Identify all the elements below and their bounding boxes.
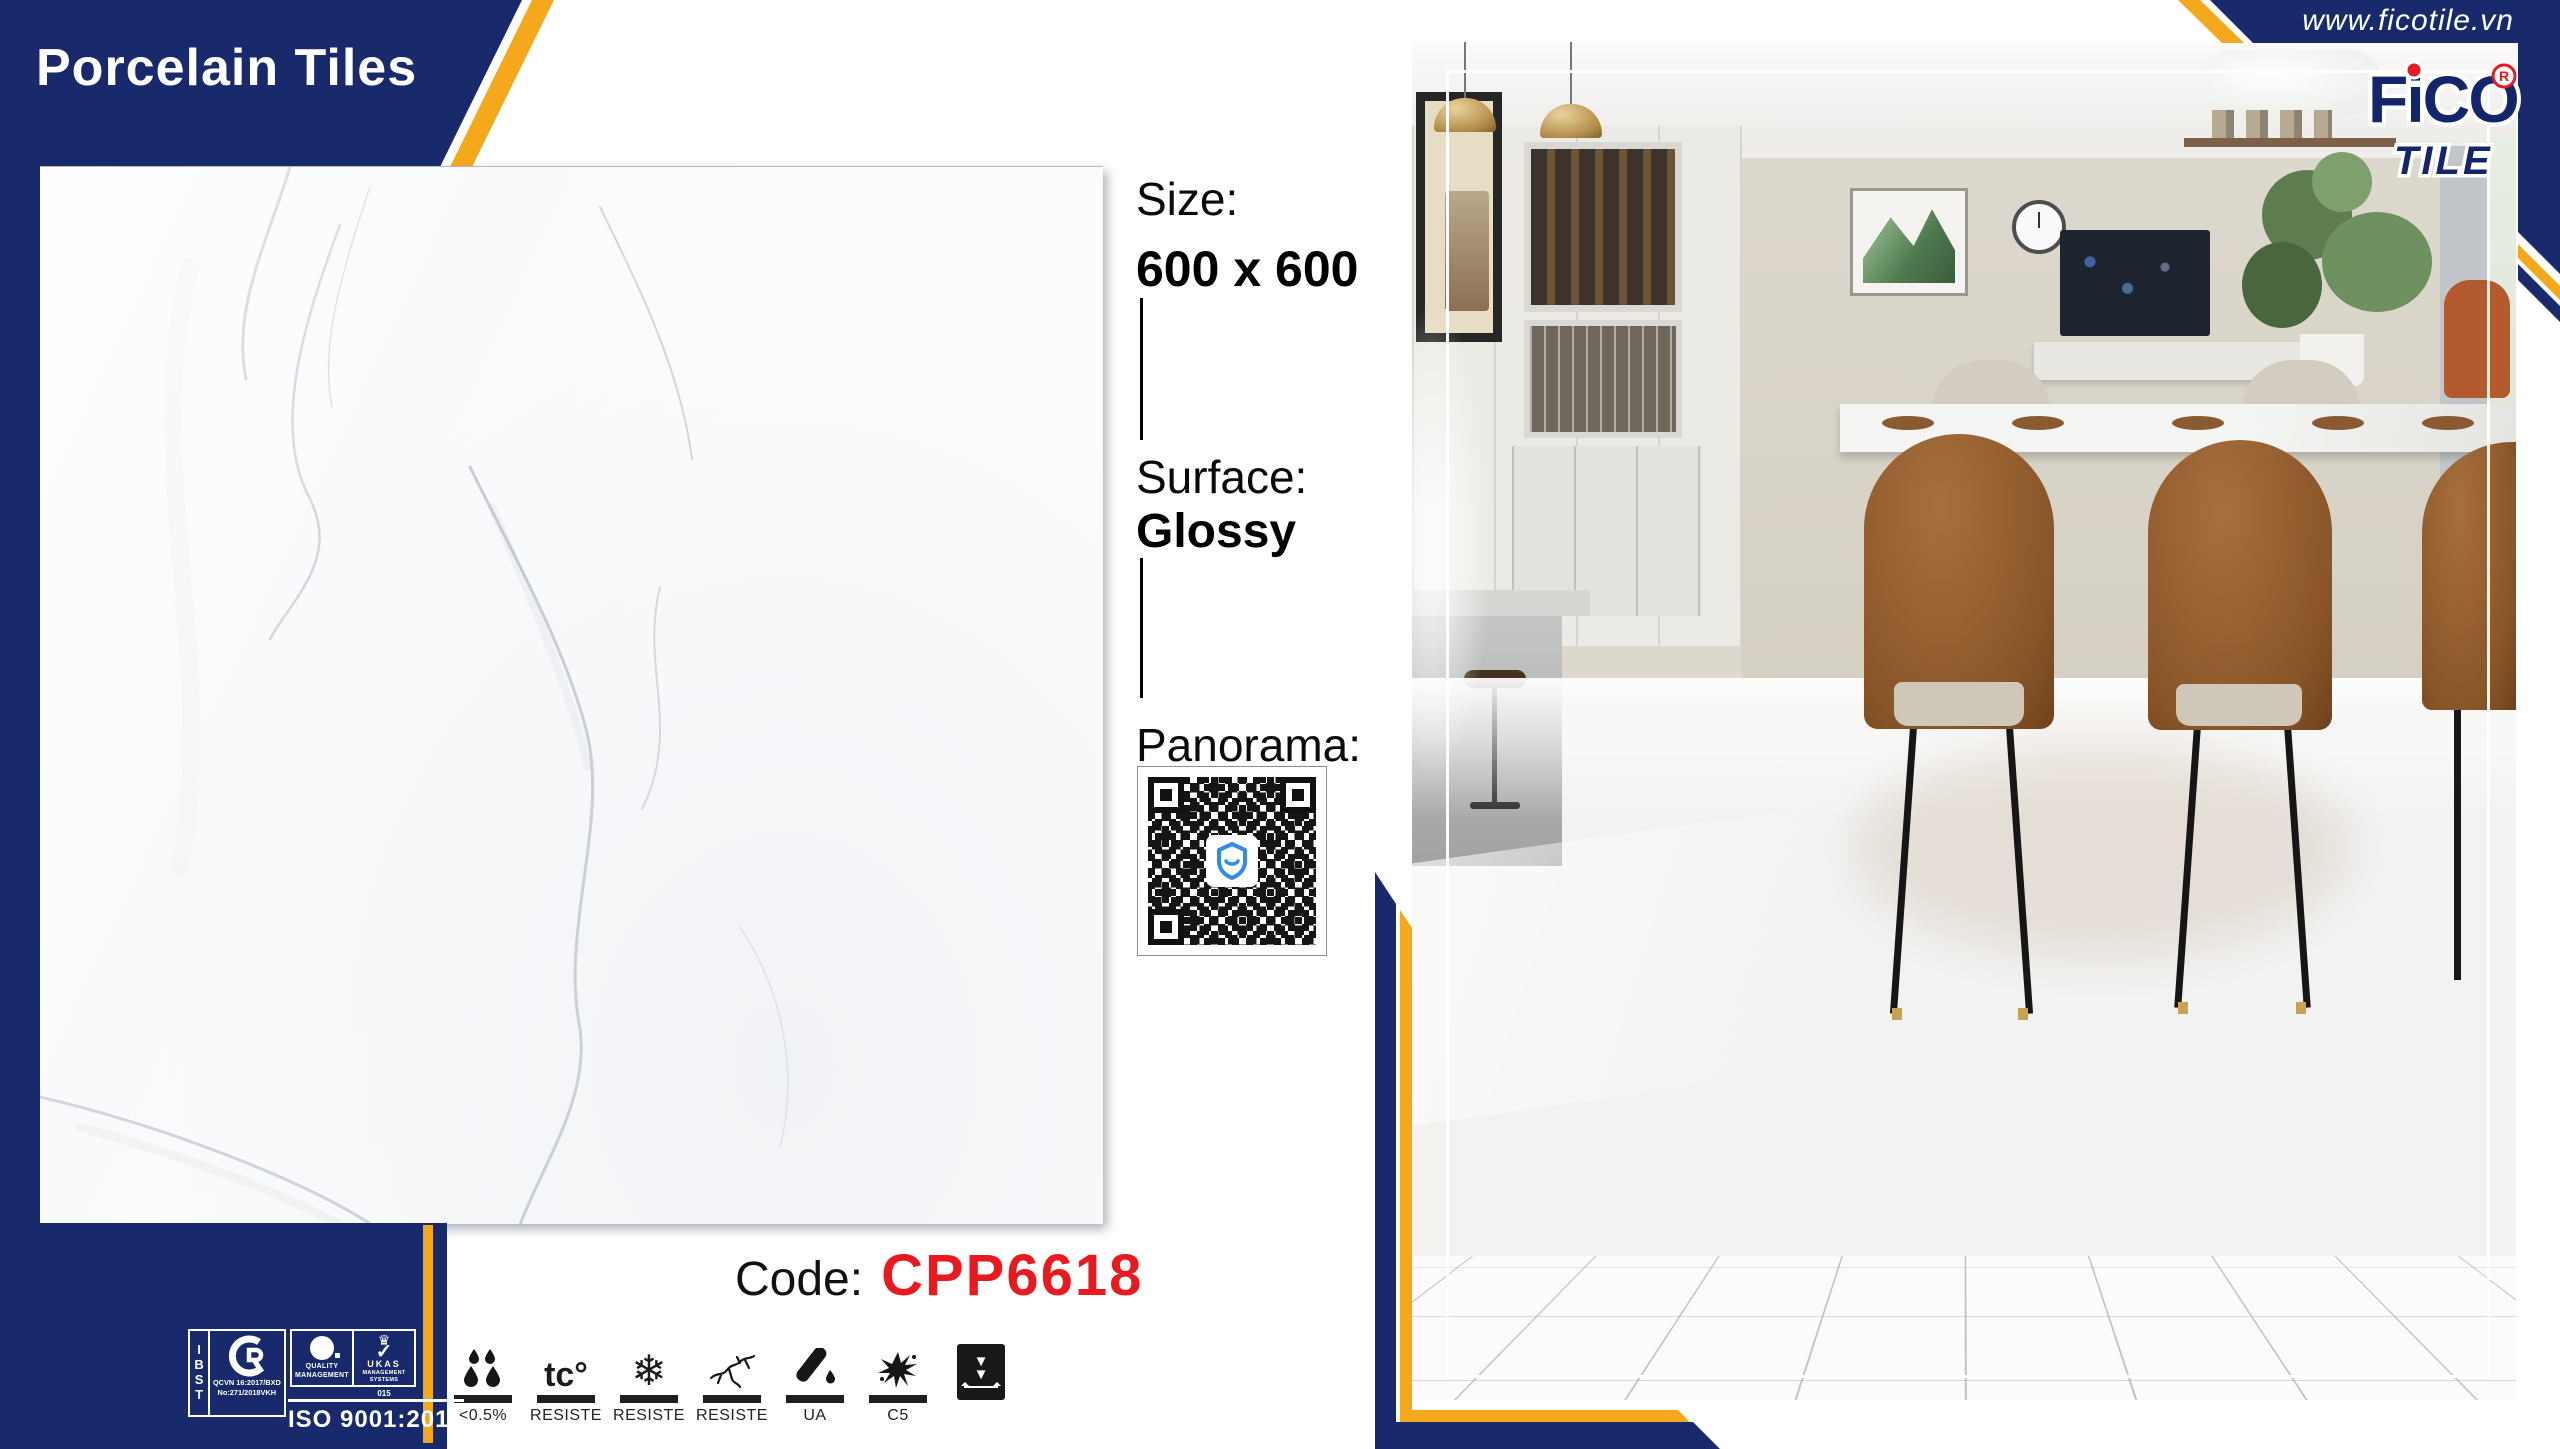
feature-temperature: tc° RESISTE bbox=[531, 1344, 601, 1425]
photo-bracket-left-navy bbox=[1375, 872, 1396, 1449]
size-label: Size: bbox=[1136, 172, 1238, 226]
ukas-sub-1: MANAGEMENT bbox=[362, 1370, 405, 1376]
iso-certification-text: ISO 9001:2015 bbox=[288, 1399, 464, 1434]
website-link[interactable]: www.ficotile.vn bbox=[2302, 4, 2514, 38]
photo-bracket-left-orange bbox=[1400, 910, 1412, 1422]
feature-bar bbox=[786, 1395, 844, 1403]
divider-line bbox=[1140, 298, 1143, 440]
cr-mark-icon bbox=[225, 1334, 269, 1378]
thickness-icon: ▼ ▼ bbox=[957, 1344, 1005, 1400]
panorama-label: Panorama: bbox=[1136, 718, 1361, 772]
feature-icons-row: <0.5% tc° RESISTE ❄ RESISTE bbox=[448, 1344, 1016, 1425]
qr-finder-icon bbox=[1148, 909, 1184, 945]
temperature-icon: tc° bbox=[544, 1344, 588, 1392]
catalog-page: Porcelain Tiles Size: 600 x 600 Surface:… bbox=[0, 0, 2560, 1449]
cr-reg-line2: No:271/2018VKH bbox=[218, 1388, 277, 1397]
feature-chemical: UA bbox=[780, 1344, 850, 1425]
logo-i-dot bbox=[2406, 62, 2422, 78]
code-label: Code: bbox=[735, 1252, 863, 1307]
quality-management-badge: QUALITY MANAGEMENT bbox=[290, 1329, 354, 1387]
qr-center-logo bbox=[1206, 835, 1258, 887]
feature-frost: ❄ RESISTE bbox=[614, 1344, 684, 1425]
code-value: CPP6618 bbox=[881, 1242, 1143, 1309]
ibst-label: IBST bbox=[190, 1331, 210, 1415]
ukas-number: 015 bbox=[352, 1389, 416, 1398]
qr-finder-icon bbox=[1148, 777, 1184, 813]
size-value: 600 x 600 bbox=[1136, 240, 1358, 298]
feature-stain: C5 bbox=[863, 1344, 933, 1425]
stain-burst-icon bbox=[875, 1344, 921, 1392]
qr-finder-icon bbox=[1280, 777, 1316, 813]
photo-bracket-bottom-orange bbox=[1400, 1410, 1690, 1422]
snowflake-icon: ❄ bbox=[631, 1344, 666, 1392]
feature-bar bbox=[869, 1395, 927, 1403]
photo-bracket-right-navy bbox=[2518, 0, 2560, 274]
feature-bar bbox=[537, 1395, 595, 1403]
crack-icon bbox=[707, 1344, 757, 1392]
cr-reg-line1: QCVN 16:2017/BXD bbox=[213, 1378, 281, 1387]
quality-label-2: MANAGEMENT bbox=[292, 1372, 352, 1381]
tile-sample-image bbox=[40, 166, 1103, 1224]
surface-label: Surface: bbox=[1136, 450, 1307, 504]
product-code-row: Code: CPP6618 bbox=[735, 1242, 1143, 1309]
panorama-qr-code[interactable] bbox=[1137, 766, 1327, 956]
water-drops-icon bbox=[460, 1344, 506, 1392]
ukas-sub-2: SYSTEMS bbox=[370, 1377, 398, 1383]
tile-gloss-sheen bbox=[40, 167, 1103, 1224]
feature-thickness: ▼ ▼ bbox=[946, 1344, 1016, 1425]
ukas-label: UKAS bbox=[354, 1360, 414, 1370]
surface-value: Glossy bbox=[1136, 504, 1296, 559]
feature-label: RESISTE bbox=[696, 1407, 768, 1425]
feature-label: C5 bbox=[887, 1407, 908, 1425]
page-title: Porcelain Tiles bbox=[36, 38, 417, 98]
room-scene-photo bbox=[1412, 42, 2516, 1400]
feature-label: <0.5% bbox=[459, 1407, 507, 1425]
brand-logo: FiCO R TILE bbox=[2366, 54, 2522, 192]
feature-label: RESISTE bbox=[530, 1407, 602, 1425]
photo-inner-frame bbox=[1446, 70, 2490, 1378]
quality-circle-icon bbox=[310, 1336, 334, 1360]
bottom-left-navy-panel: IBST QCVN 16:2017/BXD No:271/2018VKH QUA… bbox=[0, 1223, 447, 1449]
cr-certification-badge: IBST QCVN 16:2017/BXD No:271/2018VKH bbox=[188, 1329, 286, 1417]
ukas-badge: ♛ ✓ UKAS MANAGEMENT SYSTEMS bbox=[352, 1329, 416, 1387]
feature-label: UA bbox=[803, 1407, 826, 1425]
divider-line bbox=[1140, 558, 1143, 698]
logo-tile-text: TILE bbox=[2394, 139, 2493, 183]
feature-label: RESISTE bbox=[613, 1407, 685, 1425]
feature-crazing: RESISTE bbox=[697, 1344, 767, 1425]
feature-bar bbox=[703, 1395, 761, 1403]
thickness-scale-line bbox=[964, 1386, 998, 1388]
feature-bar bbox=[620, 1395, 678, 1403]
header-band: Porcelain Tiles bbox=[0, 0, 600, 167]
registered-letter: R bbox=[2499, 68, 2509, 84]
qr-pattern bbox=[1148, 777, 1316, 945]
quality-label-1: QUALITY bbox=[292, 1363, 352, 1372]
checkmark-icon: ✓ bbox=[354, 1344, 414, 1360]
chemical-pen-icon bbox=[791, 1344, 839, 1392]
photo-bracket-bottom-navy bbox=[1375, 1422, 1720, 1449]
shield-smile-icon bbox=[1212, 841, 1252, 881]
